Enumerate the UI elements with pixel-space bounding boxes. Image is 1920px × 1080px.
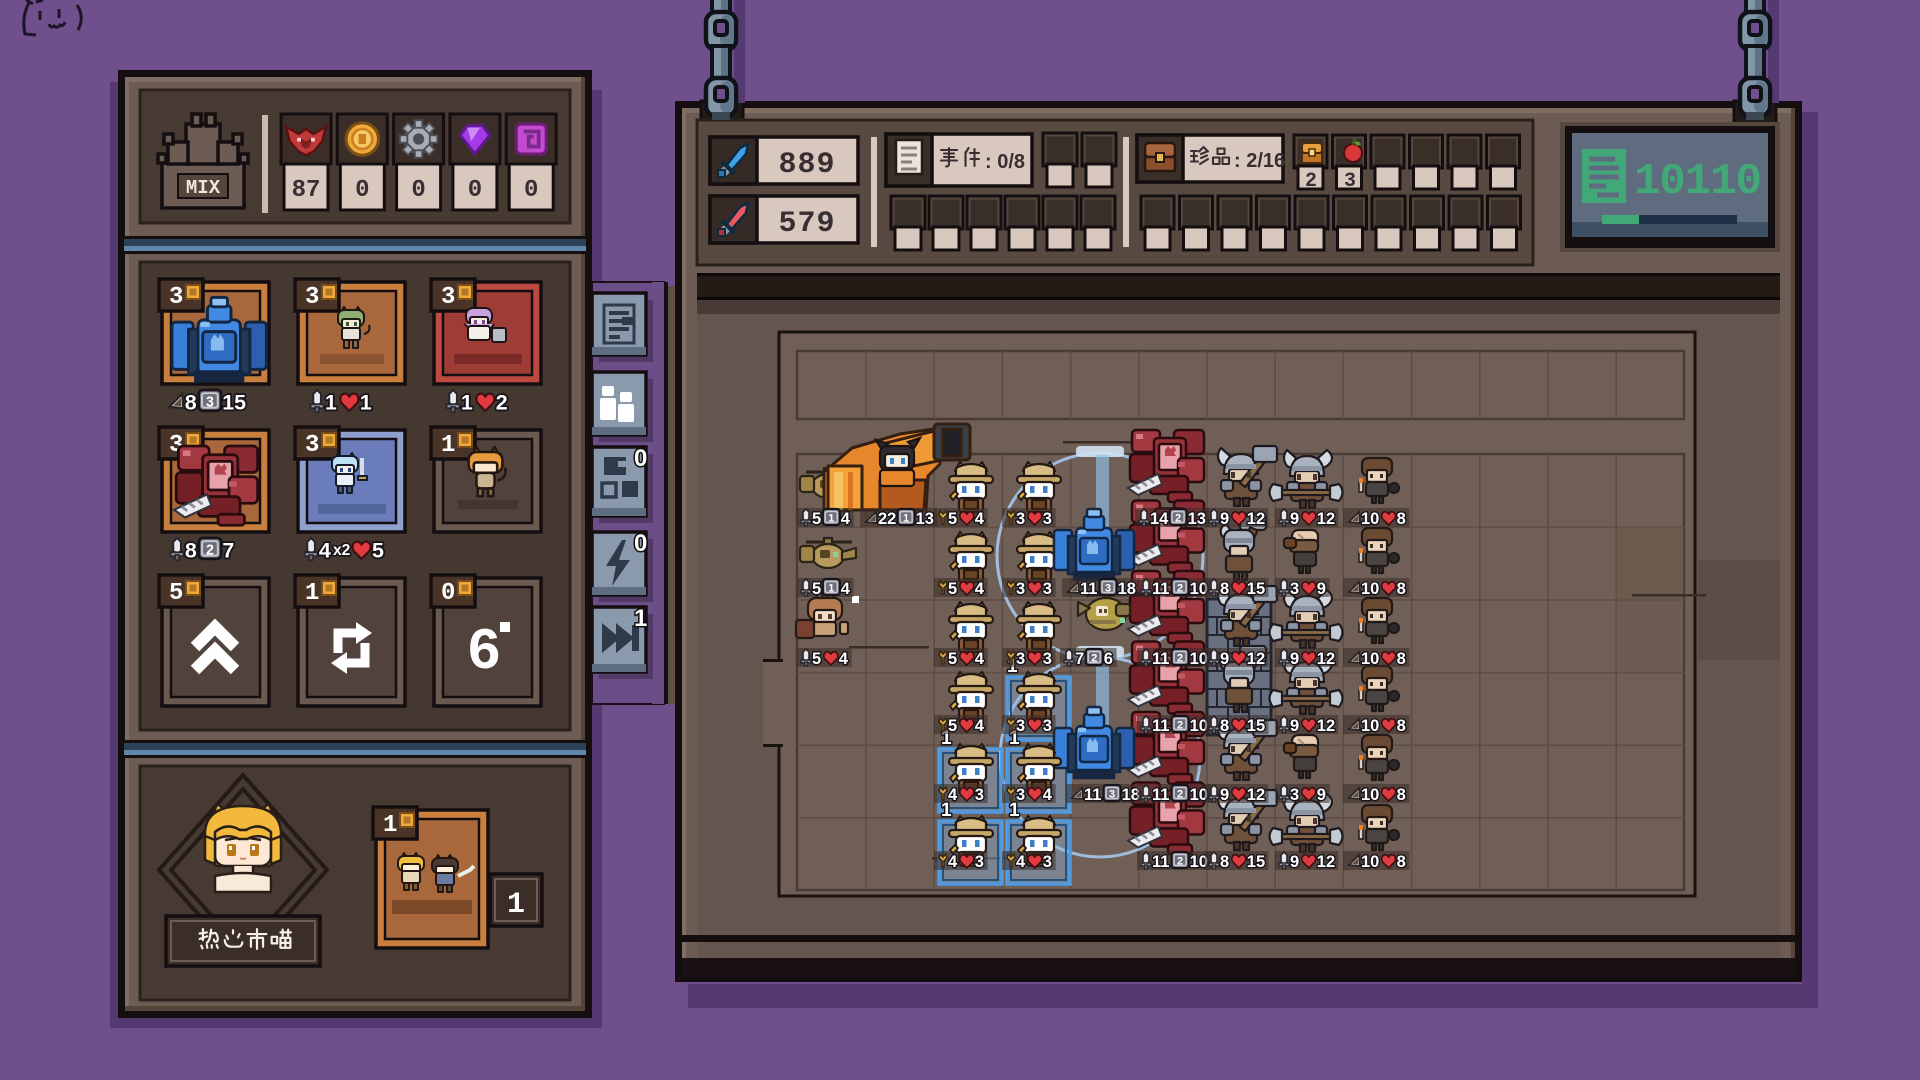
svg-text:5: 5 — [372, 539, 384, 563]
svg-text:9: 9 — [1317, 580, 1326, 598]
svg-text:8: 8 — [1397, 650, 1406, 668]
svg-text:9: 9 — [1290, 650, 1299, 668]
svg-text:8: 8 — [1220, 853, 1229, 871]
svg-text:3: 3 — [1290, 580, 1299, 598]
svg-text:0: 0 — [355, 177, 369, 204]
svg-text:5: 5 — [169, 580, 183, 607]
svg-text:579: 579 — [778, 207, 835, 241]
svg-text:18: 18 — [1118, 580, 1136, 598]
svg-text:3: 3 — [1290, 786, 1299, 804]
svg-text:11: 11 — [1152, 650, 1169, 668]
svg-text:8: 8 — [1397, 510, 1406, 528]
svg-text:9: 9 — [1220, 650, 1229, 668]
svg-text:: 0/8: : 0/8 — [985, 151, 1025, 173]
svg-text:4: 4 — [841, 580, 851, 598]
svg-text:5: 5 — [948, 717, 957, 735]
svg-text:10: 10 — [1361, 717, 1379, 735]
svg-text:2: 2 — [206, 542, 214, 558]
svg-text:0: 0 — [441, 580, 455, 607]
svg-text:3: 3 — [1109, 789, 1115, 801]
svg-text:4: 4 — [319, 539, 331, 563]
svg-text:12: 12 — [1247, 650, 1265, 668]
svg-text:8: 8 — [1220, 580, 1229, 598]
svg-text:12: 12 — [1317, 650, 1335, 668]
svg-text:2: 2 — [1175, 513, 1181, 525]
svg-text:3: 3 — [1016, 580, 1025, 598]
svg-text:3: 3 — [206, 394, 214, 410]
svg-text:8: 8 — [1220, 717, 1229, 735]
svg-text:3: 3 — [1043, 717, 1052, 735]
svg-text:12: 12 — [1247, 510, 1265, 528]
svg-text:3: 3 — [975, 853, 984, 871]
svg-text:1: 1 — [305, 580, 319, 607]
svg-text:3: 3 — [305, 284, 319, 311]
svg-text:8: 8 — [1397, 786, 1406, 804]
svg-text:9: 9 — [1290, 510, 1299, 528]
svg-text:1: 1 — [461, 391, 473, 415]
svg-text:10: 10 — [1361, 510, 1379, 528]
svg-text:10: 10 — [1361, 580, 1379, 598]
svg-text:2: 2 — [1091, 653, 1097, 665]
svg-text:12: 12 — [1317, 510, 1335, 528]
svg-text:9: 9 — [1220, 510, 1229, 528]
svg-text:15: 15 — [1247, 717, 1265, 735]
svg-text:8: 8 — [1397, 717, 1406, 735]
svg-text:4: 4 — [975, 717, 985, 735]
svg-text:3: 3 — [975, 786, 984, 804]
svg-text:15: 15 — [1247, 853, 1265, 871]
svg-text:3: 3 — [1043, 510, 1052, 528]
svg-text:1: 1 — [325, 391, 337, 415]
svg-text:6: 6 — [467, 621, 502, 686]
svg-text:4: 4 — [839, 650, 849, 668]
svg-text:10: 10 — [1361, 853, 1379, 871]
svg-text:1: 1 — [441, 432, 455, 459]
svg-text:11: 11 — [1152, 853, 1169, 871]
svg-text:5: 5 — [812, 650, 821, 668]
svg-text:1: 1 — [360, 391, 372, 415]
svg-text:8: 8 — [1397, 853, 1406, 871]
svg-text:11: 11 — [1152, 580, 1169, 598]
svg-text:2: 2 — [1177, 583, 1183, 595]
svg-text:3: 3 — [441, 284, 455, 311]
svg-text:7: 7 — [1075, 650, 1084, 668]
svg-text:MIX: MIX — [186, 177, 221, 199]
svg-text:8: 8 — [185, 391, 197, 415]
svg-text:10110: 10110 — [1634, 157, 1761, 207]
svg-text:2: 2 — [1305, 170, 1317, 193]
svg-text:4: 4 — [948, 786, 958, 804]
svg-text:0: 0 — [468, 177, 482, 204]
svg-text:9: 9 — [1317, 786, 1326, 804]
svg-text:5: 5 — [812, 510, 821, 528]
svg-text:11: 11 — [1152, 786, 1169, 804]
svg-text:: 2/16: : 2/16 — [1234, 150, 1285, 172]
svg-text:x2: x2 — [333, 542, 351, 559]
svg-text:2: 2 — [496, 391, 508, 415]
svg-text:1: 1 — [383, 812, 397, 839]
svg-text:2: 2 — [1177, 789, 1183, 801]
svg-text:4: 4 — [975, 580, 985, 598]
svg-text:12: 12 — [1247, 786, 1265, 804]
svg-text:889: 889 — [778, 148, 835, 182]
svg-text:5: 5 — [948, 510, 957, 528]
svg-text:15: 15 — [1247, 580, 1265, 598]
svg-text:1: 1 — [828, 583, 834, 595]
svg-text:1: 1 — [634, 605, 647, 632]
svg-text:1: 1 — [903, 513, 909, 525]
svg-text:7: 7 — [222, 539, 234, 563]
svg-text:3: 3 — [1344, 170, 1356, 193]
svg-text:3: 3 — [1016, 510, 1025, 528]
svg-text:9: 9 — [1290, 853, 1299, 871]
svg-text:2: 2 — [1177, 720, 1183, 732]
svg-text:12: 12 — [1317, 717, 1335, 735]
svg-text:3: 3 — [1016, 786, 1025, 804]
svg-text:13: 13 — [916, 510, 934, 528]
svg-text:5: 5 — [812, 580, 821, 598]
svg-text:4: 4 — [975, 510, 985, 528]
svg-text:2: 2 — [1177, 653, 1183, 665]
svg-text:10: 10 — [1361, 650, 1379, 668]
svg-text:2: 2 — [1177, 856, 1183, 868]
svg-text:8: 8 — [1397, 580, 1406, 598]
svg-text:3: 3 — [1105, 583, 1111, 595]
svg-text:3: 3 — [169, 284, 183, 311]
svg-text:3: 3 — [1016, 717, 1025, 735]
svg-text:3: 3 — [1043, 580, 1052, 598]
svg-text:4: 4 — [841, 510, 851, 528]
svg-text:0: 0 — [634, 445, 647, 472]
svg-text:0: 0 — [524, 177, 538, 204]
svg-text:3: 3 — [305, 432, 319, 459]
svg-text:1: 1 — [828, 513, 834, 525]
svg-text:0: 0 — [634, 530, 647, 557]
svg-text:4: 4 — [975, 650, 985, 668]
svg-text:5: 5 — [948, 580, 957, 598]
svg-text:14: 14 — [1150, 510, 1169, 528]
svg-text:3: 3 — [1043, 853, 1052, 871]
svg-text:15: 15 — [222, 391, 246, 415]
svg-text:11: 11 — [1152, 717, 1169, 735]
svg-text:1: 1 — [507, 888, 525, 922]
svg-text:13: 13 — [1188, 510, 1206, 528]
svg-text:3: 3 — [1016, 650, 1025, 668]
svg-text:22: 22 — [878, 510, 896, 528]
svg-text:87: 87 — [292, 177, 321, 204]
svg-text:4: 4 — [1043, 786, 1053, 804]
svg-text:9: 9 — [1290, 717, 1299, 735]
svg-text:3: 3 — [1043, 650, 1052, 668]
svg-text:5: 5 — [948, 650, 957, 668]
svg-text:11: 11 — [1084, 786, 1101, 804]
svg-text:4: 4 — [1016, 853, 1026, 871]
svg-text:12: 12 — [1317, 853, 1335, 871]
svg-text:0: 0 — [411, 177, 425, 204]
svg-text:10: 10 — [1361, 786, 1379, 804]
svg-text:8: 8 — [185, 539, 197, 563]
svg-text:9: 9 — [1220, 786, 1229, 804]
svg-text:6: 6 — [1104, 650, 1113, 668]
svg-text:11: 11 — [1080, 580, 1097, 598]
svg-text:4: 4 — [948, 853, 958, 871]
